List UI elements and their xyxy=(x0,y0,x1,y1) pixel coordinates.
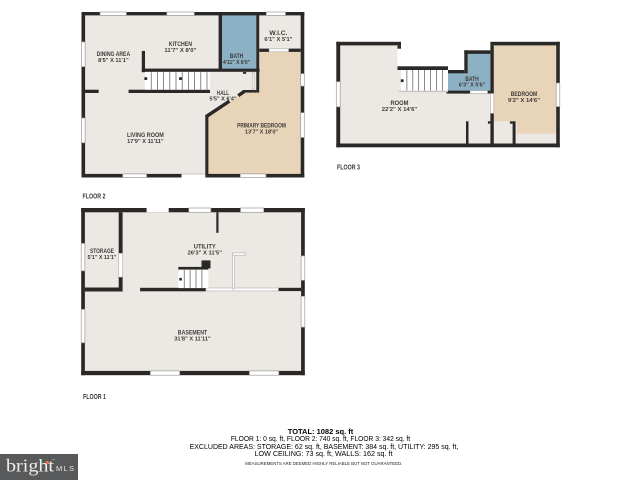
svg-text:6'1" X 5'1": 6'1" X 5'1" xyxy=(264,37,292,43)
svg-text:5'5" X 6'4": 5'5" X 6'4" xyxy=(210,97,237,103)
svg-text:FLOOR 1: 0 sq. ft, FLOOR 2: 74: FLOOR 1: 0 sq. ft, FLOOR 2: 740 sq. ft, … xyxy=(231,436,410,443)
svg-text:6'3" X 5'6": 6'3" X 5'6" xyxy=(459,83,486,89)
svg-text:26'3" X 11'5": 26'3" X 11'5" xyxy=(188,251,223,257)
svg-text:4'11" X 8'0": 4'11" X 8'0" xyxy=(223,60,250,66)
svg-text:8'5" X 11'1": 8'5" X 11'1" xyxy=(98,58,129,64)
svg-text:9'2" X 14'6": 9'2" X 14'6" xyxy=(508,98,540,104)
svg-text:bright: bright xyxy=(6,456,54,476)
svg-text:FLOOR 1: FLOOR 1 xyxy=(83,394,106,401)
svg-text:11'7" X 8'0": 11'7" X 8'0" xyxy=(164,48,196,54)
svg-text:TOTAL: 1082 sq. ft: TOTAL: 1082 sq. ft xyxy=(288,427,354,436)
svg-text:5'1" X 11'1": 5'1" X 11'1" xyxy=(88,255,117,261)
svg-text:FLOOR 2: FLOOR 2 xyxy=(83,193,106,200)
svg-text:22'2" X 14'6": 22'2" X 14'6" xyxy=(382,107,418,113)
svg-text:FLOOR 3: FLOOR 3 xyxy=(337,165,360,172)
svg-text:13'7" X 18'0": 13'7" X 18'0" xyxy=(245,129,278,135)
svg-text:MLS: MLS xyxy=(56,464,75,473)
svg-text:MEASUREMENTS ARE DEEMED HIGHLY: MEASUREMENTS ARE DEEMED HIGHLY RELIABLE … xyxy=(245,461,402,466)
svg-text:17'9" X 11'11": 17'9" X 11'11" xyxy=(127,139,164,145)
svg-text:LOW CEILING: 73 sq. ft, WALLS:: LOW CEILING: 73 sq. ft, WALLS: 162 sq. f… xyxy=(255,451,393,458)
svg-text:31'8" X 11'11": 31'8" X 11'11" xyxy=(174,336,211,342)
svg-text:EXCLUDED AREAS: STORAGE: 62 sq: EXCLUDED AREAS: STORAGE: 62 sq. ft, BASE… xyxy=(190,444,459,451)
